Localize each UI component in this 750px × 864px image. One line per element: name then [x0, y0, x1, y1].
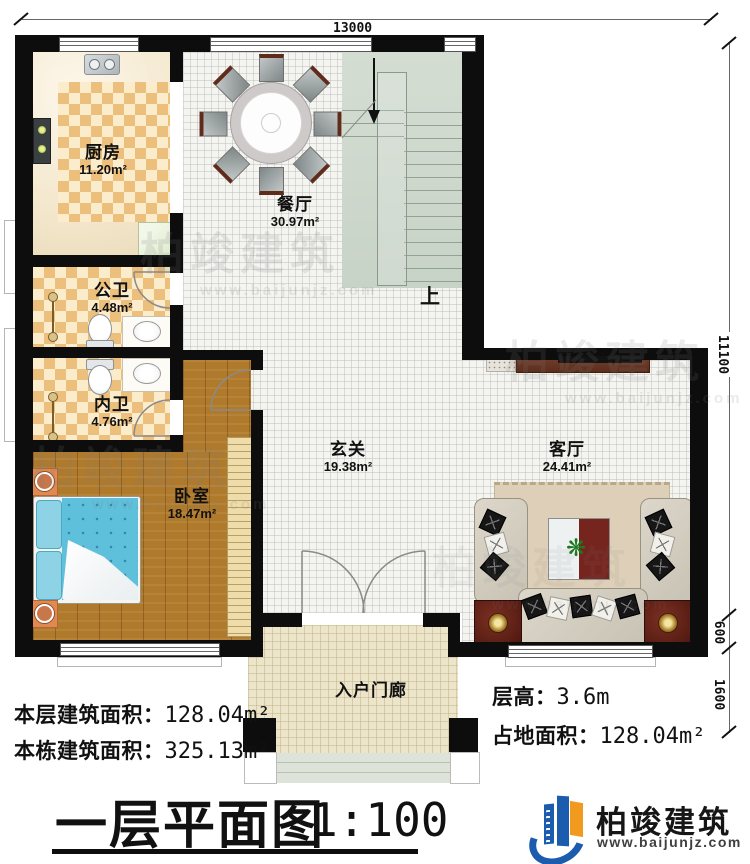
- stairs-up-label: 上: [420, 280, 440, 309]
- dimension-right-total-label: 11100: [715, 332, 730, 377]
- porch-column-right: [449, 718, 478, 752]
- dimension-line-right: [729, 42, 730, 733]
- dining-chair: [314, 112, 342, 137]
- nightstand: [30, 468, 58, 496]
- drawing-scale: 1:100: [310, 793, 448, 847]
- shower-rod-end: [48, 292, 58, 302]
- logo-tower: [557, 796, 569, 847]
- stair-railing: [377, 72, 407, 286]
- window-top-dining: [210, 37, 372, 52]
- wall-stair-right: [462, 52, 484, 348]
- shower-rod-end: [48, 392, 58, 402]
- dining-chair: [259, 167, 284, 195]
- logo-tower: [544, 803, 554, 844]
- window-living-bottom: [508, 645, 653, 658]
- shower-rod-end: [48, 332, 58, 342]
- wall-left: [15, 35, 33, 657]
- wall-kitchen-dining-a: [170, 52, 183, 82]
- dimension-right-600-label: 600: [711, 618, 726, 647]
- end-table: [644, 600, 692, 646]
- kitchen-sink: [84, 54, 120, 75]
- kitchen-stove: [33, 118, 51, 164]
- coffee-table-plant-icon: ❋: [566, 534, 586, 563]
- inner-bath-basin: [133, 363, 161, 384]
- sofa-pillow: [570, 595, 594, 619]
- window-sill-bedroom: [57, 657, 222, 667]
- nightstand: [30, 600, 58, 628]
- stair-treads: [404, 100, 462, 286]
- wall-bath-divider: [33, 347, 183, 358]
- kitchen-fridge: [138, 222, 172, 258]
- window-top-kitchen: [59, 37, 139, 52]
- inner-bath-shower-rod: [52, 396, 54, 436]
- room-label-dining: 餐厅 30.97m²: [271, 195, 319, 229]
- footprint-area-line: 占地面积：128.04m²: [492, 720, 705, 750]
- floor-area-line: 本层建筑面积：128.04m²: [14, 699, 270, 729]
- brand-logo-icon: [528, 792, 590, 854]
- title-underline: [52, 849, 418, 854]
- bed-pillow: [36, 551, 62, 600]
- room-label-bedroom: 卧室 18.47m²: [168, 487, 216, 521]
- room-label-living: 客厅 24.41m²: [543, 440, 591, 474]
- dimension-right-1600-label: 1600: [711, 676, 726, 713]
- end-table: [474, 600, 522, 646]
- wall-right: [690, 348, 708, 657]
- floor-plan-canvas: 13000 11100 600 1600 上: [0, 0, 750, 864]
- bedroom-wardrobe: [227, 437, 253, 637]
- bed-pillow: [36, 500, 62, 549]
- window-top-stairs: [444, 37, 476, 52]
- room-label-public-bath: 公卫 4.48m²: [91, 281, 132, 315]
- window-bedroom-bottom: [60, 643, 220, 656]
- room-label-foyer: 玄关 19.38m²: [324, 440, 372, 474]
- public-bath-shower-rod: [52, 296, 54, 336]
- room-label-inner-bath: 内卫 4.76m²: [91, 395, 132, 429]
- porch-steps: [275, 753, 453, 783]
- room-label-porch: 入户门廊: [335, 681, 407, 701]
- dimension-line-top: [22, 19, 712, 20]
- brand-url: www.baijunjz.com: [597, 834, 742, 850]
- wall-foyer-bottom-left: [262, 613, 302, 627]
- room-label-kitchen: 厨房 11.20m²: [79, 143, 127, 177]
- wall-bedroom-right-stub: [251, 350, 263, 370]
- window-sill-living: [505, 657, 656, 667]
- dining-chair: [259, 54, 284, 82]
- page-title: 一层平面图: [55, 783, 325, 858]
- public-bath-basin: [133, 321, 161, 342]
- sofa-pillow: [546, 596, 571, 621]
- storey-height-line: 层高：3.6m: [492, 681, 609, 711]
- building-area-line: 本栋建筑面积：325.13m²: [14, 735, 270, 765]
- inner-bath-toilet: [88, 365, 112, 395]
- wall-innerbath-bottom: [33, 440, 183, 452]
- dining-table-center: [261, 113, 281, 133]
- tv: [558, 356, 642, 363]
- wall-kitchen-bottom: [33, 255, 183, 267]
- dimension-top-label: 13000: [330, 21, 375, 36]
- dining-chair: [200, 112, 228, 137]
- logo-tower-orange: [570, 801, 583, 837]
- porch-step-side-right: [450, 752, 480, 784]
